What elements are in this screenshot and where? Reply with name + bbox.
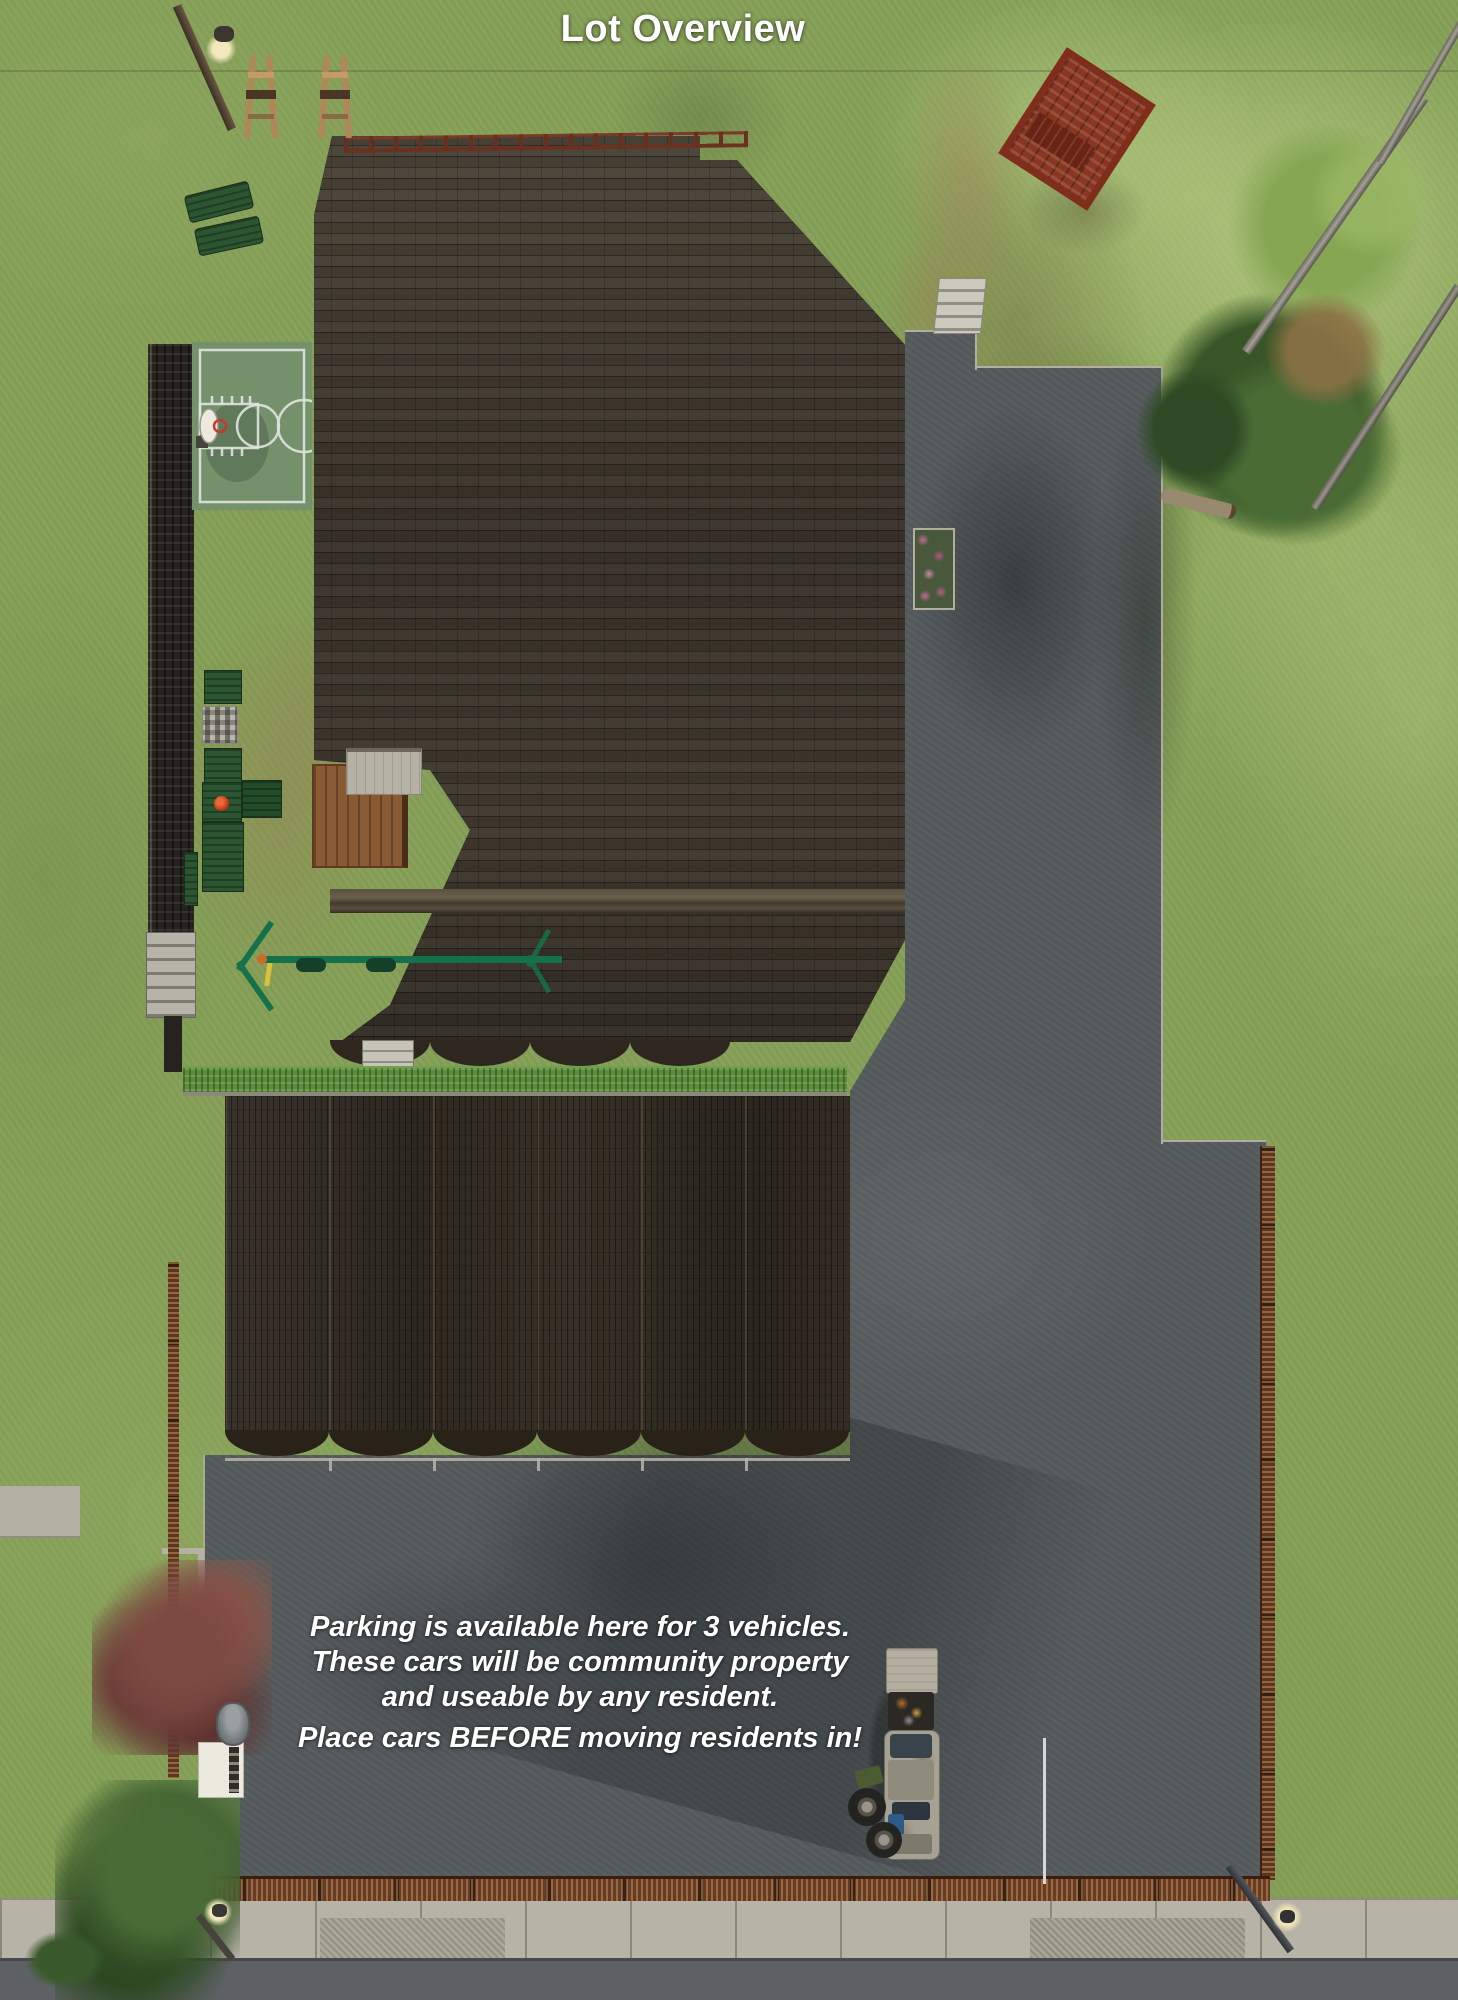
parking-space-stub bbox=[537, 1458, 540, 1471]
flower-bed bbox=[913, 528, 955, 610]
stone-edging bbox=[975, 330, 977, 370]
picnic-table bbox=[242, 780, 282, 818]
page-title: Lot Overview bbox=[561, 8, 806, 51]
car-windshield bbox=[890, 1734, 932, 1758]
porch-roof bbox=[346, 748, 422, 795]
parking-space-stub bbox=[745, 1458, 748, 1471]
basketball-court bbox=[192, 342, 312, 510]
parking-space-stub bbox=[433, 1458, 436, 1471]
wood-fence-right bbox=[1260, 1146, 1275, 1880]
park-bench bbox=[204, 748, 242, 784]
car-engine-bay bbox=[888, 1692, 934, 1730]
annotation-line: and useable by any resident. bbox=[280, 1680, 880, 1715]
barbecue-grill bbox=[214, 796, 229, 811]
street-lamp-head bbox=[212, 1904, 227, 1917]
spare-tire bbox=[866, 1822, 902, 1858]
dumpster bbox=[198, 1742, 244, 1798]
car-roof bbox=[888, 1760, 934, 1800]
annotation-line: Parking is available here for 3 vehicles… bbox=[280, 1610, 880, 1645]
spare-tire bbox=[848, 1788, 886, 1826]
basketball-backboard bbox=[200, 409, 218, 443]
chess-table bbox=[202, 706, 238, 744]
stone-wall bbox=[164, 1016, 182, 1072]
pine-tree bbox=[1115, 345, 1275, 515]
easel bbox=[318, 56, 352, 138]
parking-space-stub bbox=[641, 1458, 644, 1471]
stone-edging bbox=[1163, 1140, 1266, 1142]
garage-roof bbox=[225, 1096, 850, 1432]
trash-can bbox=[216, 1702, 250, 1746]
side-street-corner bbox=[0, 1486, 80, 1538]
park-bench bbox=[184, 852, 198, 906]
lot-overview-image: Parking is available here for 3 vehicles… bbox=[0, 0, 1458, 2000]
wood-fence-bottom bbox=[166, 1876, 1270, 1901]
picnic-table bbox=[202, 822, 244, 892]
hedge bbox=[183, 1066, 847, 1094]
swing-seat bbox=[296, 958, 326, 972]
parking-annotation: Parking is available here for 3 vehicles… bbox=[280, 1610, 880, 1756]
stone-stairs bbox=[146, 932, 196, 1018]
annotation-line: These cars will be community property bbox=[280, 1645, 880, 1680]
street-lamp-head bbox=[1280, 1910, 1295, 1923]
conifer-tree bbox=[10, 1920, 120, 2000]
gravel-patch bbox=[1030, 1918, 1245, 1958]
park-bench bbox=[204, 670, 242, 704]
swing-set bbox=[240, 905, 570, 1015]
lot-boundary-line bbox=[0, 70, 1458, 72]
concrete-steps bbox=[933, 278, 987, 334]
parking-space-stub bbox=[329, 1458, 332, 1471]
car-hood-open bbox=[886, 1648, 938, 1694]
street-lamp-head bbox=[214, 26, 234, 42]
gravel-patch bbox=[320, 1918, 505, 1958]
basketball-court-lines bbox=[192, 342, 312, 510]
annotation-line: Place cars BEFORE moving residents in! bbox=[280, 1721, 880, 1756]
easel bbox=[244, 56, 278, 138]
stone-wall bbox=[148, 344, 194, 936]
swing-seat bbox=[366, 958, 396, 972]
sign-pole bbox=[1043, 1738, 1046, 1884]
